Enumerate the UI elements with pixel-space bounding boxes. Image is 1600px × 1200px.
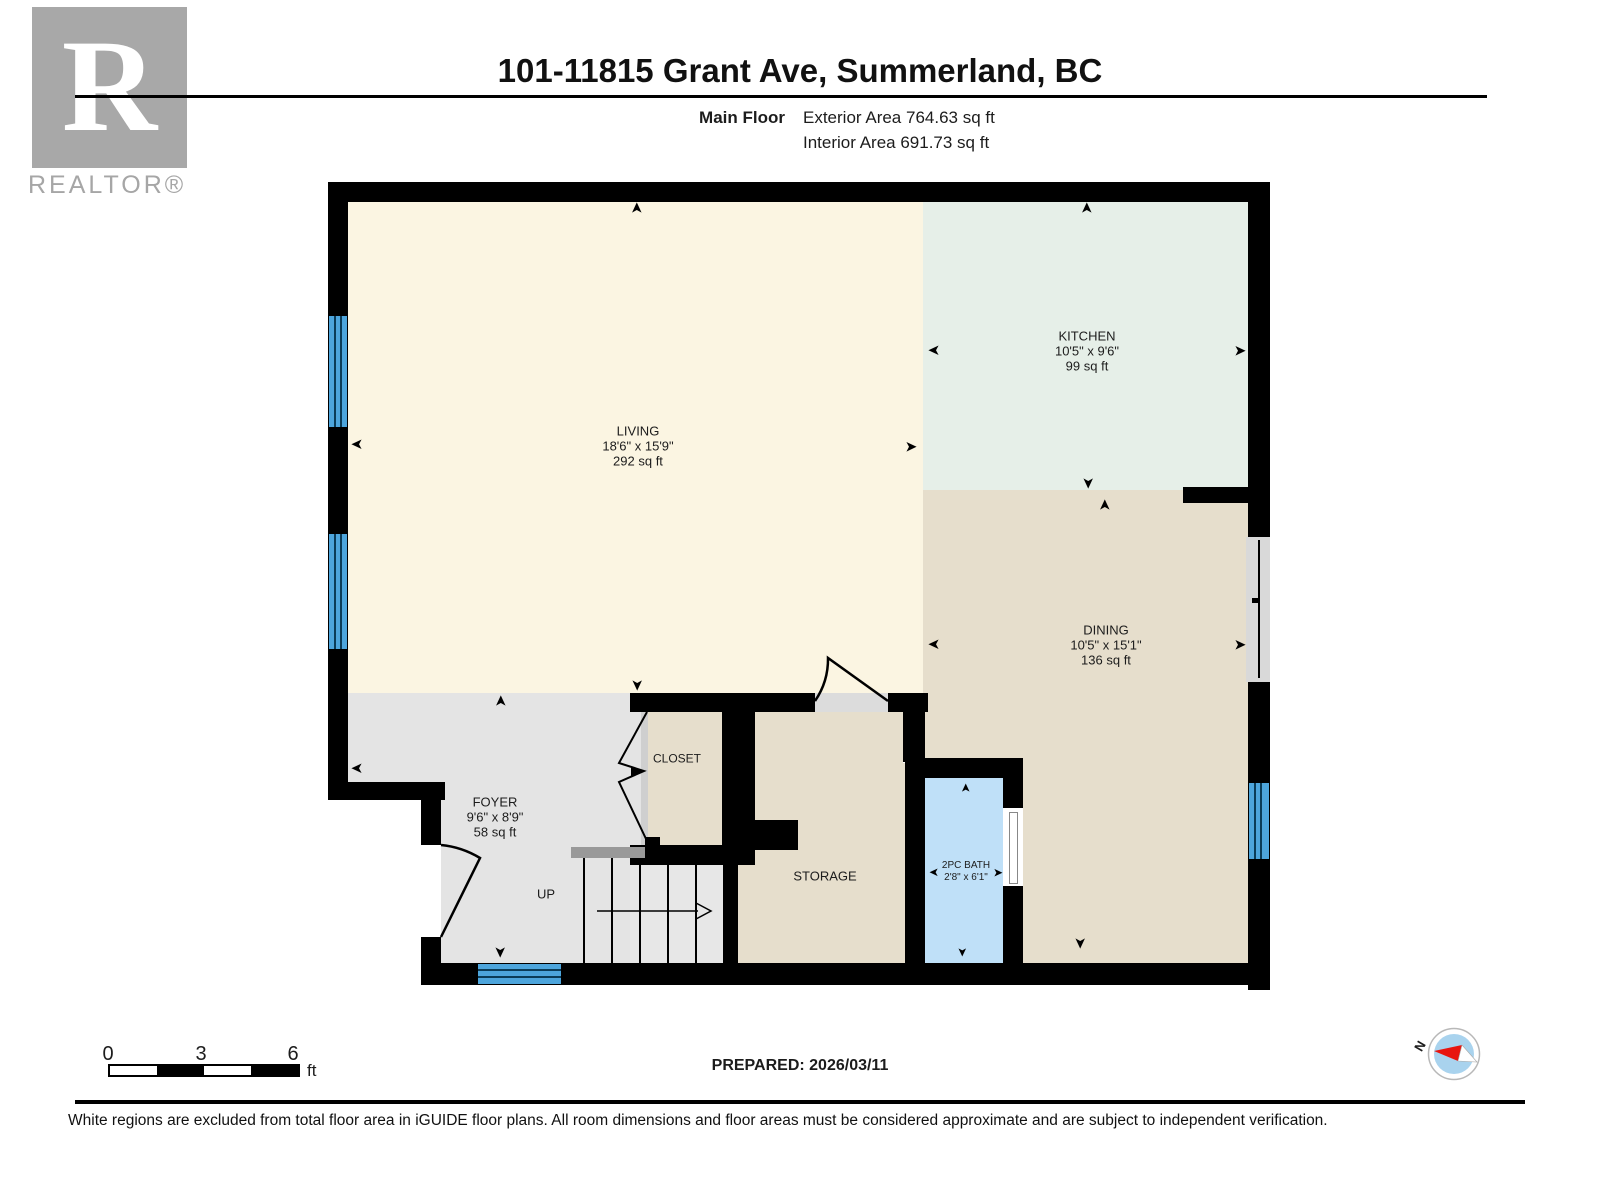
interior-area: Interior Area 691.73 sq ft	[803, 133, 989, 153]
dim-arrow-left: ➤	[929, 865, 939, 880]
dim-arrow-right: ➤	[993, 866, 1003, 881]
room-dims: 10'5" x 15'1"	[1070, 638, 1141, 653]
dim-arrow-up: ➤	[1080, 202, 1095, 215]
title-rule	[75, 95, 1487, 98]
footer-rule	[75, 1100, 1525, 1104]
dim-arrow-down: ➤	[1073, 937, 1088, 950]
foyer-label: FOYER 9'6" x 8'9" 58 sq ft	[467, 795, 524, 840]
storage-label: STORAGE	[793, 869, 856, 884]
room-area: 58 sq ft	[467, 825, 524, 840]
floor-label: Main Floor	[640, 108, 785, 128]
room-dims: 2'8" x 6'1"	[942, 872, 990, 884]
bath-label: 2PC BATH 2'8" x 6'1"	[942, 860, 990, 884]
dim-arrow-left: ➤	[351, 437, 364, 452]
floorplan: ➤ ➤ ➤ ➤ ➤ ➤ ➤ ➤ ➤ ➤ ➤ ➤ ➤ ➤ ➤ ➤ ➤ ➤ ➤ LI…	[328, 178, 1270, 990]
room-name: DINING	[1070, 623, 1141, 638]
dim-arrow-up: ➤	[630, 202, 645, 215]
room-area: 136 sq ft	[1070, 653, 1141, 668]
prepared-date: PREPARED: 2026/03/11	[0, 1057, 1600, 1075]
room-name: LIVING	[602, 424, 673, 439]
dining-label: DINING 10'5" x 15'1" 136 sq ft	[1070, 623, 1141, 668]
dim-arrow-up: ➤	[1098, 499, 1113, 512]
dim-arrow-left: ➤	[351, 761, 364, 776]
dim-arrow-down: ➤	[955, 947, 970, 957]
disclaimer-text: White regions are excluded from total fl…	[68, 1112, 1328, 1130]
closet-bifold-doors	[619, 712, 647, 841]
room-dims: 9'6" x 8'9"	[467, 810, 524, 825]
living-label: LIVING 18'6" x 15'9" 292 sq ft	[602, 424, 673, 469]
compass	[1420, 1020, 1490, 1090]
kitchen-label: KITCHEN 10'5" x 9'6" 99 sq ft	[1055, 329, 1119, 374]
dim-arrow-right: ➤	[1234, 344, 1247, 359]
room-dims: 10'5" x 9'6"	[1055, 344, 1119, 359]
room-area: 292 sq ft	[602, 454, 673, 469]
exterior-area: Exterior Area 764.63 sq ft	[803, 108, 995, 128]
dim-arrow-down: ➤	[630, 679, 645, 692]
dim-arrow-down: ➤	[1081, 477, 1096, 490]
page-title: 101-11815 Grant Ave, Summerland, BC	[0, 52, 1600, 90]
storage-door-swing	[815, 658, 888, 701]
room-dims: 18'6" x 15'9"	[602, 439, 673, 454]
dim-arrow-left: ➤	[928, 637, 941, 652]
stairs-up-label: UP	[537, 887, 555, 902]
dim-arrow-up: ➤	[494, 695, 509, 708]
dim-arrow-left: ➤	[928, 343, 941, 358]
entry-door-swing	[441, 845, 480, 937]
room-name: FOYER	[467, 795, 524, 810]
stair-arrowhead	[696, 903, 711, 919]
room-name: KITCHEN	[1055, 329, 1119, 344]
dim-arrow-right: ➤	[905, 440, 918, 455]
dim-arrow-down: ➤	[493, 946, 508, 959]
floorplan-page: { "logo": { "r_letter": "R", "word": "RE…	[0, 0, 1600, 1200]
dim-arrow-up: ➤	[959, 783, 974, 793]
room-area: 99 sq ft	[1055, 359, 1119, 374]
dim-arrow-right: ➤	[1234, 638, 1247, 653]
room-name: 2PC BATH	[942, 860, 990, 872]
realtor-logo-word: REALTOR®	[28, 171, 208, 200]
closet-label: CLOSET	[653, 752, 701, 767]
